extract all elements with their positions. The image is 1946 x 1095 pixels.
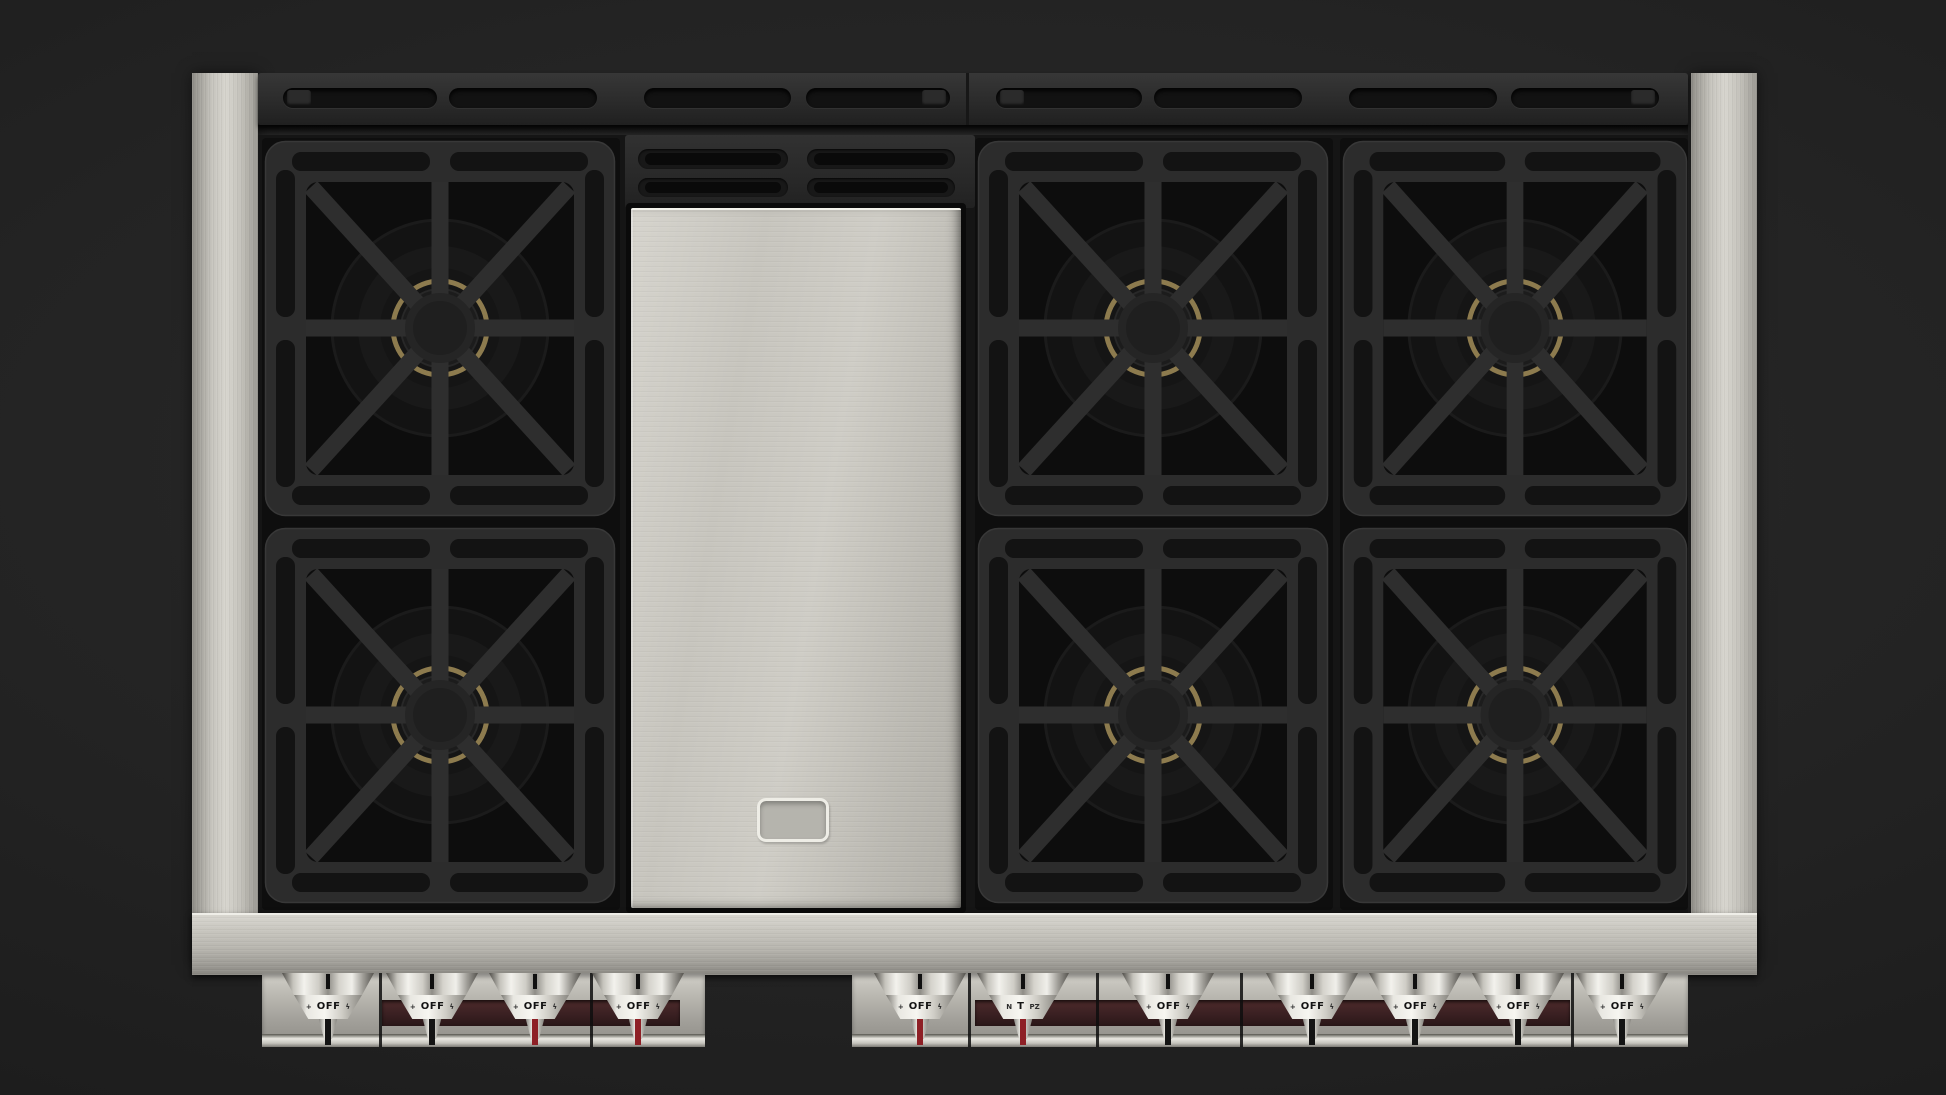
knob-index-mark [430,974,434,989]
bezel-seam [1240,973,1243,1047]
knob-right-marking: ϟ [1185,1004,1190,1011]
control-knob[interactable]: + OFF ϟ [1470,973,1566,1047]
knob-position-label: OFF [1301,1002,1325,1012]
knob-left-marking: + [1600,1004,1606,1011]
griddle-vent-slot [807,149,955,169]
burner-grate-icon [1342,140,1688,517]
side-trim-left [192,73,258,965]
knob-position-label: OFF [627,1002,651,1012]
burner-grate-icon [977,527,1329,904]
control-knob[interactable]: + OFF ϟ [384,973,480,1047]
knob-pointer-stripe [917,1019,923,1045]
knob-pointer-stripe [1309,1019,1315,1045]
oven-vent-slot [806,88,950,108]
hinge-slot [922,90,946,106]
control-knob[interactable]: N T PZ [975,973,1071,1047]
knob-right-marking: ϟ [655,1004,660,1011]
oven-vent-slot [996,88,1142,108]
bezel-seam [379,973,382,1047]
knob-right-marking: ϟ [345,1004,350,1011]
knob-index-mark [1166,974,1170,989]
knob-position-label: OFF [1157,1002,1181,1012]
knob-index-mark [1310,974,1314,989]
burner-grate-icon [264,527,616,904]
burner-grate [264,140,616,517]
griddle-vent-slot [638,178,788,197]
knob-index-mark [1413,974,1417,989]
knob-left-marking: + [616,1004,622,1011]
control-knob[interactable]: + OFF ϟ [1367,973,1463,1047]
burner-grate [264,527,616,904]
knob-position-label: OFF [1507,1002,1531,1012]
knob-pointer-stripe [1412,1019,1418,1045]
griddle-cover [631,208,961,908]
knob-right-marking: ϟ [1432,1004,1437,1011]
knob-left-marking: + [1496,1004,1502,1011]
knob-pointer-stripe [325,1019,331,1045]
knob-face: + OFF ϟ [398,995,466,1019]
control-knob[interactable]: + OFF ϟ [590,973,686,1047]
knob-position-label: T [1017,1002,1024,1012]
knob-face: N T PZ [989,995,1057,1019]
knob-pointer-stripe [429,1019,435,1045]
oven-vent-slot [1349,88,1497,108]
knob-face: + OFF ϟ [501,995,569,1019]
knob-right-marking: ϟ [1329,1004,1334,1011]
knob-pointer-stripe [635,1019,641,1045]
burner-grate-icon [264,140,616,517]
knob-pointer-stripe [532,1019,538,1045]
bezel-seam [1096,973,1099,1047]
knob-right-marking: ϟ [1535,1004,1540,1011]
knob-left-marking: + [1146,1004,1152,1011]
control-knob[interactable]: + OFF ϟ [487,973,583,1047]
knob-face: + OFF ϟ [886,995,954,1019]
griddle-vent-slot [807,178,955,197]
side-trim-right [1691,73,1757,965]
control-knob[interactable]: + OFF ϟ [1574,973,1670,1047]
knob-position-label: OFF [1611,1002,1635,1012]
product-image-gas-rangetop: + OFF ϟ + OFF ϟ + [0,0,1946,1095]
griddle-recess [626,203,966,913]
oven-vent-slot [1511,88,1659,108]
knob-index-mark [1021,974,1025,989]
knob-pointer-stripe [1165,1019,1171,1045]
knob-position-label: OFF [421,1002,445,1012]
knob-face: + OFF ϟ [1484,995,1552,1019]
knob-index-mark [636,974,640,989]
hinge-slot [1000,90,1024,106]
control-knob[interactable]: + OFF ϟ [1264,973,1360,1047]
knob-face: + OFF ϟ [1278,995,1346,1019]
knob-left-marking: + [1290,1004,1296,1011]
griddle-vent-slot [638,149,788,169]
hinge-slot [1631,90,1655,106]
knob-position-label: OFF [909,1002,933,1012]
rear-vent-panel [258,73,1688,125]
knob-index-mark [1516,974,1520,989]
knob-face: + OFF ϟ [604,995,672,1019]
knob-index-mark [918,974,922,989]
burner-grate-icon [977,140,1329,517]
front-bullnose [192,913,1757,975]
knob-left-marking: + [306,1004,312,1011]
burner-grate-icon [1342,527,1688,904]
panel-seam [966,73,969,125]
hinge-slot [287,90,311,106]
knob-right-marking: ϟ [937,1004,942,1011]
control-knob[interactable]: + OFF ϟ [280,973,376,1047]
oven-vent-slot [1154,88,1302,108]
bezel-seam [968,973,971,1047]
control-knob[interactable]: + OFF ϟ [1120,973,1216,1047]
knob-left-marking: + [410,1004,416,1011]
knob-pointer-stripe [1515,1019,1521,1045]
burner-grate [1342,140,1688,517]
knob-position-label: OFF [524,1002,548,1012]
knob-left-marking: + [1393,1004,1399,1011]
griddle-vent-panel [625,135,975,208]
knob-pointer-stripe [1619,1019,1625,1045]
knob-index-mark [1620,974,1624,989]
burner-grate [977,527,1329,904]
knob-face: + OFF ϟ [1381,995,1449,1019]
knob-right-marking: PZ [1029,1004,1039,1011]
burner-grate [1342,527,1688,904]
knob-position-label: OFF [1404,1002,1428,1012]
griddle-badge [757,798,829,842]
panel-shadow [258,125,1688,135]
knob-right-marking: ϟ [449,1004,454,1011]
knob-face: + OFF ϟ [1588,995,1656,1019]
knob-position-label: OFF [317,1002,341,1012]
knob-pointer-stripe [1020,1019,1026,1045]
knob-face: + OFF ϟ [1134,995,1202,1019]
knob-right-marking: ϟ [552,1004,557,1011]
knob-index-mark [533,974,537,989]
control-knob[interactable]: + OFF ϟ [872,973,968,1047]
oven-vent-slot [449,88,597,108]
oven-vent-slot [283,88,437,108]
knob-left-marking: + [513,1004,519,1011]
knob-left-marking: N [1006,1004,1012,1011]
oven-vent-slot [644,88,791,108]
knob-face: + OFF ϟ [294,995,362,1019]
knob-left-marking: + [898,1004,904,1011]
burner-grate [977,140,1329,517]
knob-right-marking: ϟ [1639,1004,1644,1011]
knob-index-mark [326,974,330,989]
